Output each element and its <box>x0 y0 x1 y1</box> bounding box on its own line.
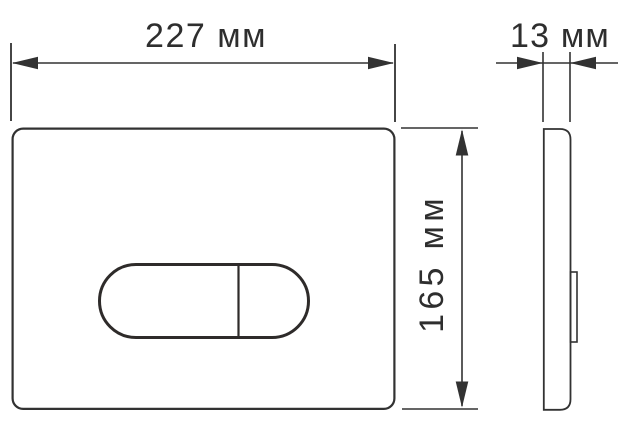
svg-text:165 мм: 165 мм <box>413 194 451 333</box>
svg-text:227 мм: 227 мм <box>145 17 267 55</box>
svg-text:13 мм: 13 мм <box>510 17 610 55</box>
